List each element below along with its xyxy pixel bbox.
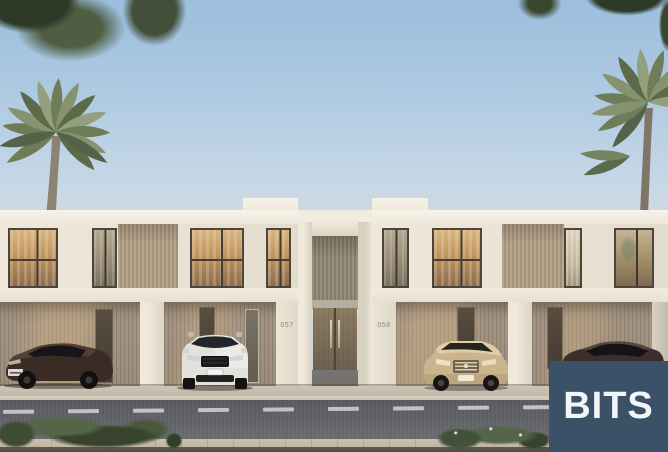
window [382,228,409,288]
entrance-pillar: 058 [372,302,396,388]
palm-fronds [580,48,668,179]
lane-dash [328,407,359,411]
entrance-recess [312,236,358,388]
palm-tree-right [560,36,668,222]
window [564,228,582,288]
window-glass [616,230,652,286]
door-handle [330,320,332,348]
window-glass [384,230,407,286]
floor-band [372,288,668,302]
center-entrance [298,210,372,388]
window-glass [434,230,480,286]
parapet [372,210,668,224]
bits-logo: BITS [549,361,668,452]
window-glass [192,230,242,286]
unit-number-left: 057 [276,322,298,329]
parapet [0,210,298,224]
wood-slat-panel [502,224,564,288]
car-gold-sedan [419,330,513,392]
window [266,228,291,288]
car-white-suv [174,328,256,392]
entry-double-doors [313,308,357,370]
lane-dash [198,408,229,412]
window [8,228,58,288]
entrance-pillar: 057 [276,302,298,388]
window [92,228,117,288]
lane-dash [393,406,424,410]
door-handle [338,320,340,348]
shrub-left [0,410,188,452]
carport-column [140,302,164,388]
wood-slat-panel [118,224,178,288]
unit-number-right: 058 [372,322,396,329]
upper-facade [0,224,298,288]
window [614,228,654,288]
bits-logo-text: BITS [563,385,654,428]
window [432,228,482,288]
lane-dash [458,406,489,410]
entrance-lintel [312,300,358,308]
window-glass [268,230,289,286]
car-dark-sedan-left [0,334,118,390]
upper-facade [372,224,668,288]
lane-dash [263,407,294,411]
window-glass [10,230,56,286]
entrance-pillar [358,222,372,388]
architectural-render: 057 058 [0,0,668,452]
shrub-right [426,420,561,452]
floor-band [0,288,298,302]
window-glass [566,230,580,286]
window-glass [94,230,115,286]
entrance-pillar [298,222,312,388]
window [190,228,244,288]
entrance-slat-wall [312,236,358,300]
